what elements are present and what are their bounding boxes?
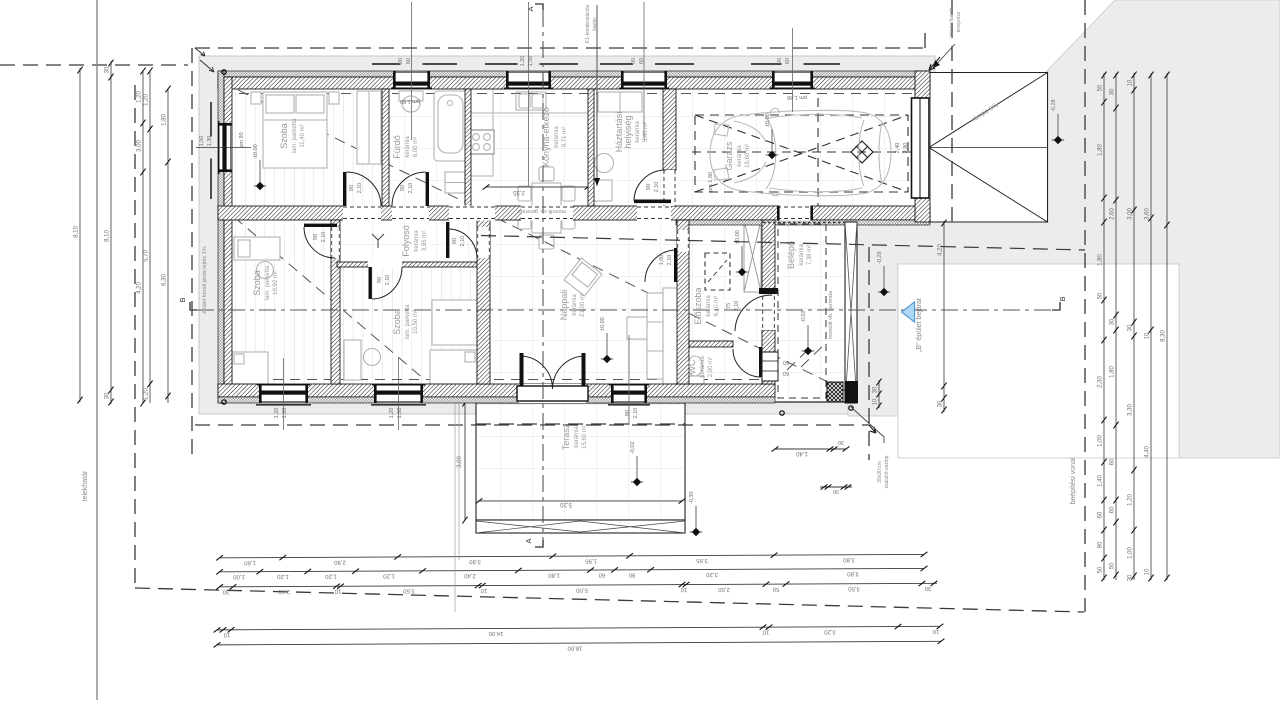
svg-text:kerámia: kerámia [737,145,743,167]
svg-text:10,50 m²: 10,50 m² [413,310,419,334]
svg-text:1,50: 1,50 [397,408,403,419]
svg-text:90: 90 [631,58,637,64]
svg-text:1,20: 1,20 [274,408,280,419]
svg-text:3,90: 3,90 [469,558,481,564]
svg-text:1,20: 1,20 [520,56,526,67]
svg-text:B: B [1058,296,1067,301]
svg-text:1,95: 1,95 [585,558,597,564]
svg-text:90: 90 [628,571,635,577]
svg-text:21,00 m²: 21,00 m² [580,293,586,317]
svg-text:10: 10 [932,628,939,634]
svg-text:±0,00: ±0,00 [765,113,771,127]
svg-text:6,30: 6,30 [162,274,168,286]
svg-text:10: 10 [680,586,687,592]
svg-text:K1-kondenzációs: K1-kondenzációs [585,4,591,43]
svg-text:2,10: 2,10 [633,408,639,419]
svg-text:10: 10 [762,629,769,635]
svg-text:10,92 m²: 10,92 m² [273,271,279,295]
svg-text:3,85 m²: 3,85 m² [422,231,428,251]
svg-text:3,00: 3,00 [137,140,143,152]
svg-text:3,20: 3,20 [824,628,836,634]
svg-text:4,20: 4,20 [137,282,143,294]
svg-text:2,10: 2,10 [734,301,740,312]
svg-text:30: 30 [1110,88,1116,95]
svg-text:2,40: 2,40 [464,572,476,578]
svg-text:4,40: 4,40 [1145,446,1151,458]
svg-text:4,20: 4,20 [938,244,944,256]
svg-text:-0,28: -0,28 [1051,99,1057,112]
svg-text:30: 30 [1128,324,1134,331]
svg-text:pm 1,80: pm 1,80 [708,172,714,192]
svg-text:2,00: 2,00 [718,586,730,592]
svg-text:2,80: 2,80 [903,143,909,154]
svg-text:2,10: 2,10 [667,255,673,266]
svg-text:1,80: 1,80 [1098,254,1104,266]
svg-text:2,10: 2,10 [357,183,363,194]
svg-text:1,00: 1,00 [659,255,665,266]
svg-text:1,00: 1,00 [233,573,245,579]
svg-text:5,00: 5,00 [576,587,588,593]
svg-text:1,80: 1,80 [162,114,168,126]
svg-text:50: 50 [1098,84,1104,91]
svg-text:-0,02: -0,02 [801,310,807,323]
svg-text:épület körüli járda lejtés 1%: épület körüli járda lejtés 1% [202,246,208,313]
svg-text:kerámia: kerámia [405,136,411,158]
svg-text:3,00: 3,00 [457,456,463,468]
svg-text:Terasz: Terasz [561,423,571,450]
svg-text:30: 30 [105,392,111,399]
svg-text:3,00: 3,00 [1128,208,1134,220]
svg-text:30: 30 [838,439,844,445]
svg-text:Konyha-étkező: Konyha-étkező [541,107,551,167]
svg-text:8,10: 8,10 [74,226,80,238]
svg-text:zsalukő oszlop: zsalukő oszlop [884,455,890,488]
svg-text:helyiség: helyiség [623,115,633,148]
svg-text:2,60: 2,60 [278,588,290,594]
svg-text:2,10: 2,10 [654,182,660,193]
svg-text:1,50: 1,50 [282,408,288,419]
svg-text:30: 30 [1110,318,1116,325]
svg-text:30: 30 [924,585,931,591]
svg-text:-0,30: -0,30 [689,491,695,504]
svg-text:90: 90 [452,238,458,244]
svg-text:60: 60 [785,58,791,64]
svg-text:1,20: 1,20 [389,408,395,419]
svg-text:75: 75 [726,303,732,309]
svg-text:80: 80 [1098,541,1104,548]
svg-text:kerámia: kerámia [574,426,580,448]
svg-text:90: 90 [625,410,631,416]
svg-text:90: 90 [777,58,783,64]
svg-text:1,80: 1,80 [1110,366,1116,378]
svg-text:1,20: 1,20 [144,388,150,400]
svg-text:1,20: 1,20 [137,91,143,103]
svg-text:90: 90 [349,185,355,191]
svg-text:±0,00: ±0,00 [253,144,259,158]
svg-text:1,50: 1,50 [528,56,534,67]
svg-text:Szoba: Szoba [392,309,402,335]
svg-text:60: 60 [783,359,789,365]
svg-text:7,38 m²: 7,38 m² [807,245,813,265]
svg-text:1,40: 1,40 [796,450,808,456]
svg-text:30: 30 [873,386,879,393]
svg-text:10: 10 [480,587,487,593]
svg-text:1,30: 1,30 [207,136,213,147]
svg-text:10: 10 [873,398,879,405]
svg-text:A: A [524,538,533,543]
svg-text:pm 90: pm 90 [239,132,245,147]
svg-text:Belépő: Belépő [786,241,796,269]
svg-text:1,20: 1,20 [325,573,337,579]
svg-text:50: 50 [1110,562,1116,569]
svg-text:Garázs: Garázs [724,141,734,171]
svg-text:3,65: 3,65 [696,557,708,563]
svg-text:1,20: 1,20 [1128,494,1134,506]
svg-text:B: B [178,297,187,302]
svg-text:30: 30 [833,488,839,494]
svg-text:monolit vb. gerenda: monolit vb. gerenda [517,208,566,214]
svg-text:30: 30 [938,400,944,407]
svg-text:2,10: 2,10 [385,275,391,286]
svg-text:60: 60 [1110,458,1116,465]
svg-text:90: 90 [377,277,383,283]
svg-text:8,10: 8,10 [105,230,111,242]
svg-text:90: 90 [400,185,406,191]
svg-text:19,60 m²: 19,60 m² [745,144,751,168]
svg-text:1,60: 1,60 [244,559,256,565]
svg-text:A: A [526,6,535,11]
svg-text:kerámia: kerámia [554,126,560,148]
svg-text:kerámia: kerámia [635,121,641,143]
svg-text:3,20: 3,20 [706,571,718,577]
svg-text:2,10: 2,10 [321,232,327,243]
svg-text:50: 50 [1098,566,1104,573]
svg-text:Fürdő: Fürdő [392,135,402,159]
svg-text:30x30 cm: 30x30 cm [877,461,883,483]
svg-text:60: 60 [783,370,789,376]
svg-text:pm 1,80: pm 1,80 [787,94,807,100]
svg-text:1,00: 1,00 [1128,547,1134,559]
svg-text:lam. parketta: lam. parketta [405,304,411,339]
svg-text:2,40: 2,40 [895,143,901,154]
svg-text:monolit vb. gerenda: monolit vb. gerenda [828,290,834,339]
svg-text:50: 50 [1098,292,1104,299]
svg-text:2,35: 2,35 [513,189,525,195]
svg-text:10: 10 [223,631,230,637]
svg-text:3,50: 3,50 [848,585,860,591]
svg-text:3,80: 3,80 [847,570,859,576]
svg-text:2,90: 2,90 [334,559,346,565]
svg-text:pm 1,80: pm 1,80 [400,98,420,104]
svg-text:2,30: 2,30 [1098,376,1104,388]
svg-text:-0,28: -0,28 [877,251,883,264]
svg-text:3,30: 3,30 [1128,404,1134,416]
svg-text:kerámia: kerámia [700,356,706,378]
svg-text:60: 60 [598,571,605,577]
svg-text:tereprész: tereprész [956,11,962,32]
svg-text:3,80: 3,80 [843,556,855,562]
svg-text:6,10 m²: 6,10 m² [714,296,720,316]
svg-text:2,00 m²: 2,00 m² [708,357,714,377]
svg-text:1,40: 1,40 [1098,475,1104,487]
svg-text:Folyosó: Folyosó [401,225,411,257]
svg-text:30: 30 [105,66,111,73]
svg-text:3,60: 3,60 [1145,208,1151,220]
svg-text:30: 30 [222,588,229,594]
svg-text:90: 90 [646,184,652,190]
svg-text:„B” épület bejárat: „B” épület bejárat [916,298,923,352]
svg-text:Nappali: Nappali [559,290,569,321]
svg-text:90: 90 [398,58,404,64]
svg-text:10: 10 [334,588,341,594]
svg-text:1,50: 1,50 [199,136,205,147]
svg-text:6,00 m²: 6,00 m² [413,137,419,157]
svg-text:Szoba: Szoba [279,123,289,149]
svg-text:1,80: 1,80 [1098,144,1104,156]
svg-text:2,10: 2,10 [408,183,414,194]
svg-text:kerámia: kerámia [414,230,420,252]
svg-text:kerámia: kerámia [572,294,578,316]
svg-text:lam. parketta: lam. parketta [292,118,298,153]
svg-text:1,00: 1,00 [1098,435,1104,447]
svg-text:2,10: 2,10 [460,236,466,247]
svg-text:1,80: 1,80 [548,572,560,578]
svg-text:5,20: 5,20 [560,501,572,507]
svg-text:1,20: 1,20 [383,573,395,579]
svg-text:Előszoba: Előszoba [693,287,703,324]
svg-text:beépítési vonal: beépítési vonal [1070,457,1077,505]
svg-text:±0,00: ±0,00 [600,317,606,331]
svg-text:11,40 m²: 11,40 m² [300,124,306,147]
svg-text:1,20: 1,20 [277,573,289,579]
svg-text:letakarítandó: letakarítandó [949,7,955,36]
svg-text:14,00: 14,00 [488,630,504,636]
svg-text:Szoba: Szoba [252,270,262,296]
svg-text:lam. parketta: lam. parketta [265,265,271,300]
svg-text:3,50: 3,50 [403,587,415,593]
svg-text:60: 60 [1110,506,1116,513]
svg-text:10: 10 [1145,332,1151,339]
svg-text:90: 90 [313,234,319,240]
svg-text:kazán: kazán [592,17,598,31]
svg-text:15,60 m²: 15,60 m² [582,425,588,449]
svg-text:8,30: 8,30 [1161,330,1167,342]
svg-text:kerámia: kerámia [706,295,712,317]
svg-text:18,00: 18,00 [567,645,583,651]
svg-text:-0,02: -0,02 [630,441,636,454]
svg-text:50: 50 [772,586,779,592]
svg-text:WC: WC [687,359,697,374]
svg-text:30: 30 [1128,574,1134,581]
svg-text:1,20: 1,20 [144,94,150,106]
svg-text:9,71 m²: 9,71 m² [562,127,568,147]
svg-text:10: 10 [1145,568,1151,575]
svg-text:2,60: 2,60 [1110,208,1116,220]
svg-text:10: 10 [1128,79,1134,86]
svg-text:5,70: 5,70 [144,250,150,262]
svg-text:kerámia: kerámia [799,244,805,266]
svg-text:telekhatár: telekhatár [82,470,89,501]
svg-text:60: 60 [1098,511,1104,518]
